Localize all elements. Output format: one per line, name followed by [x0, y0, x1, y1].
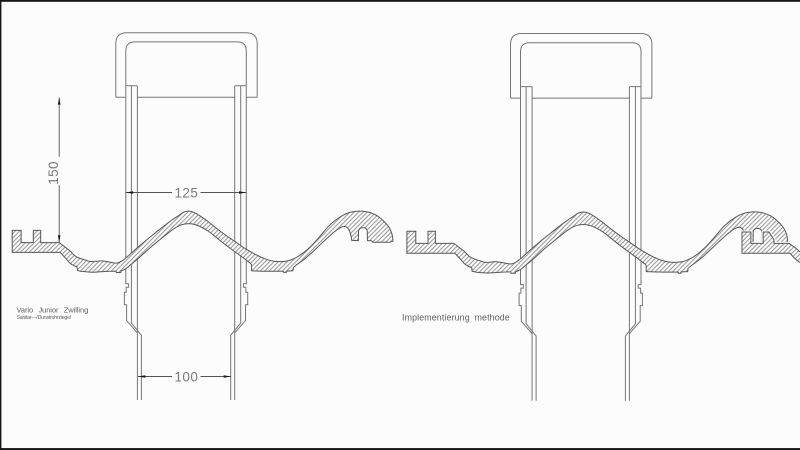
svg-text:100: 100: [175, 369, 199, 384]
svg-text:Implementierung methode: Implementierung methode: [402, 313, 510, 323]
svg-text:150: 150: [46, 161, 61, 185]
svg-text:Vario Junior Zwilling: Vario Junior Zwilling: [17, 305, 89, 314]
svg-text:Sanitar—/Dunstrohrziegel: Sanitar—/Dunstrohrziegel: [17, 315, 71, 321]
svg-text:125: 125: [175, 185, 199, 200]
